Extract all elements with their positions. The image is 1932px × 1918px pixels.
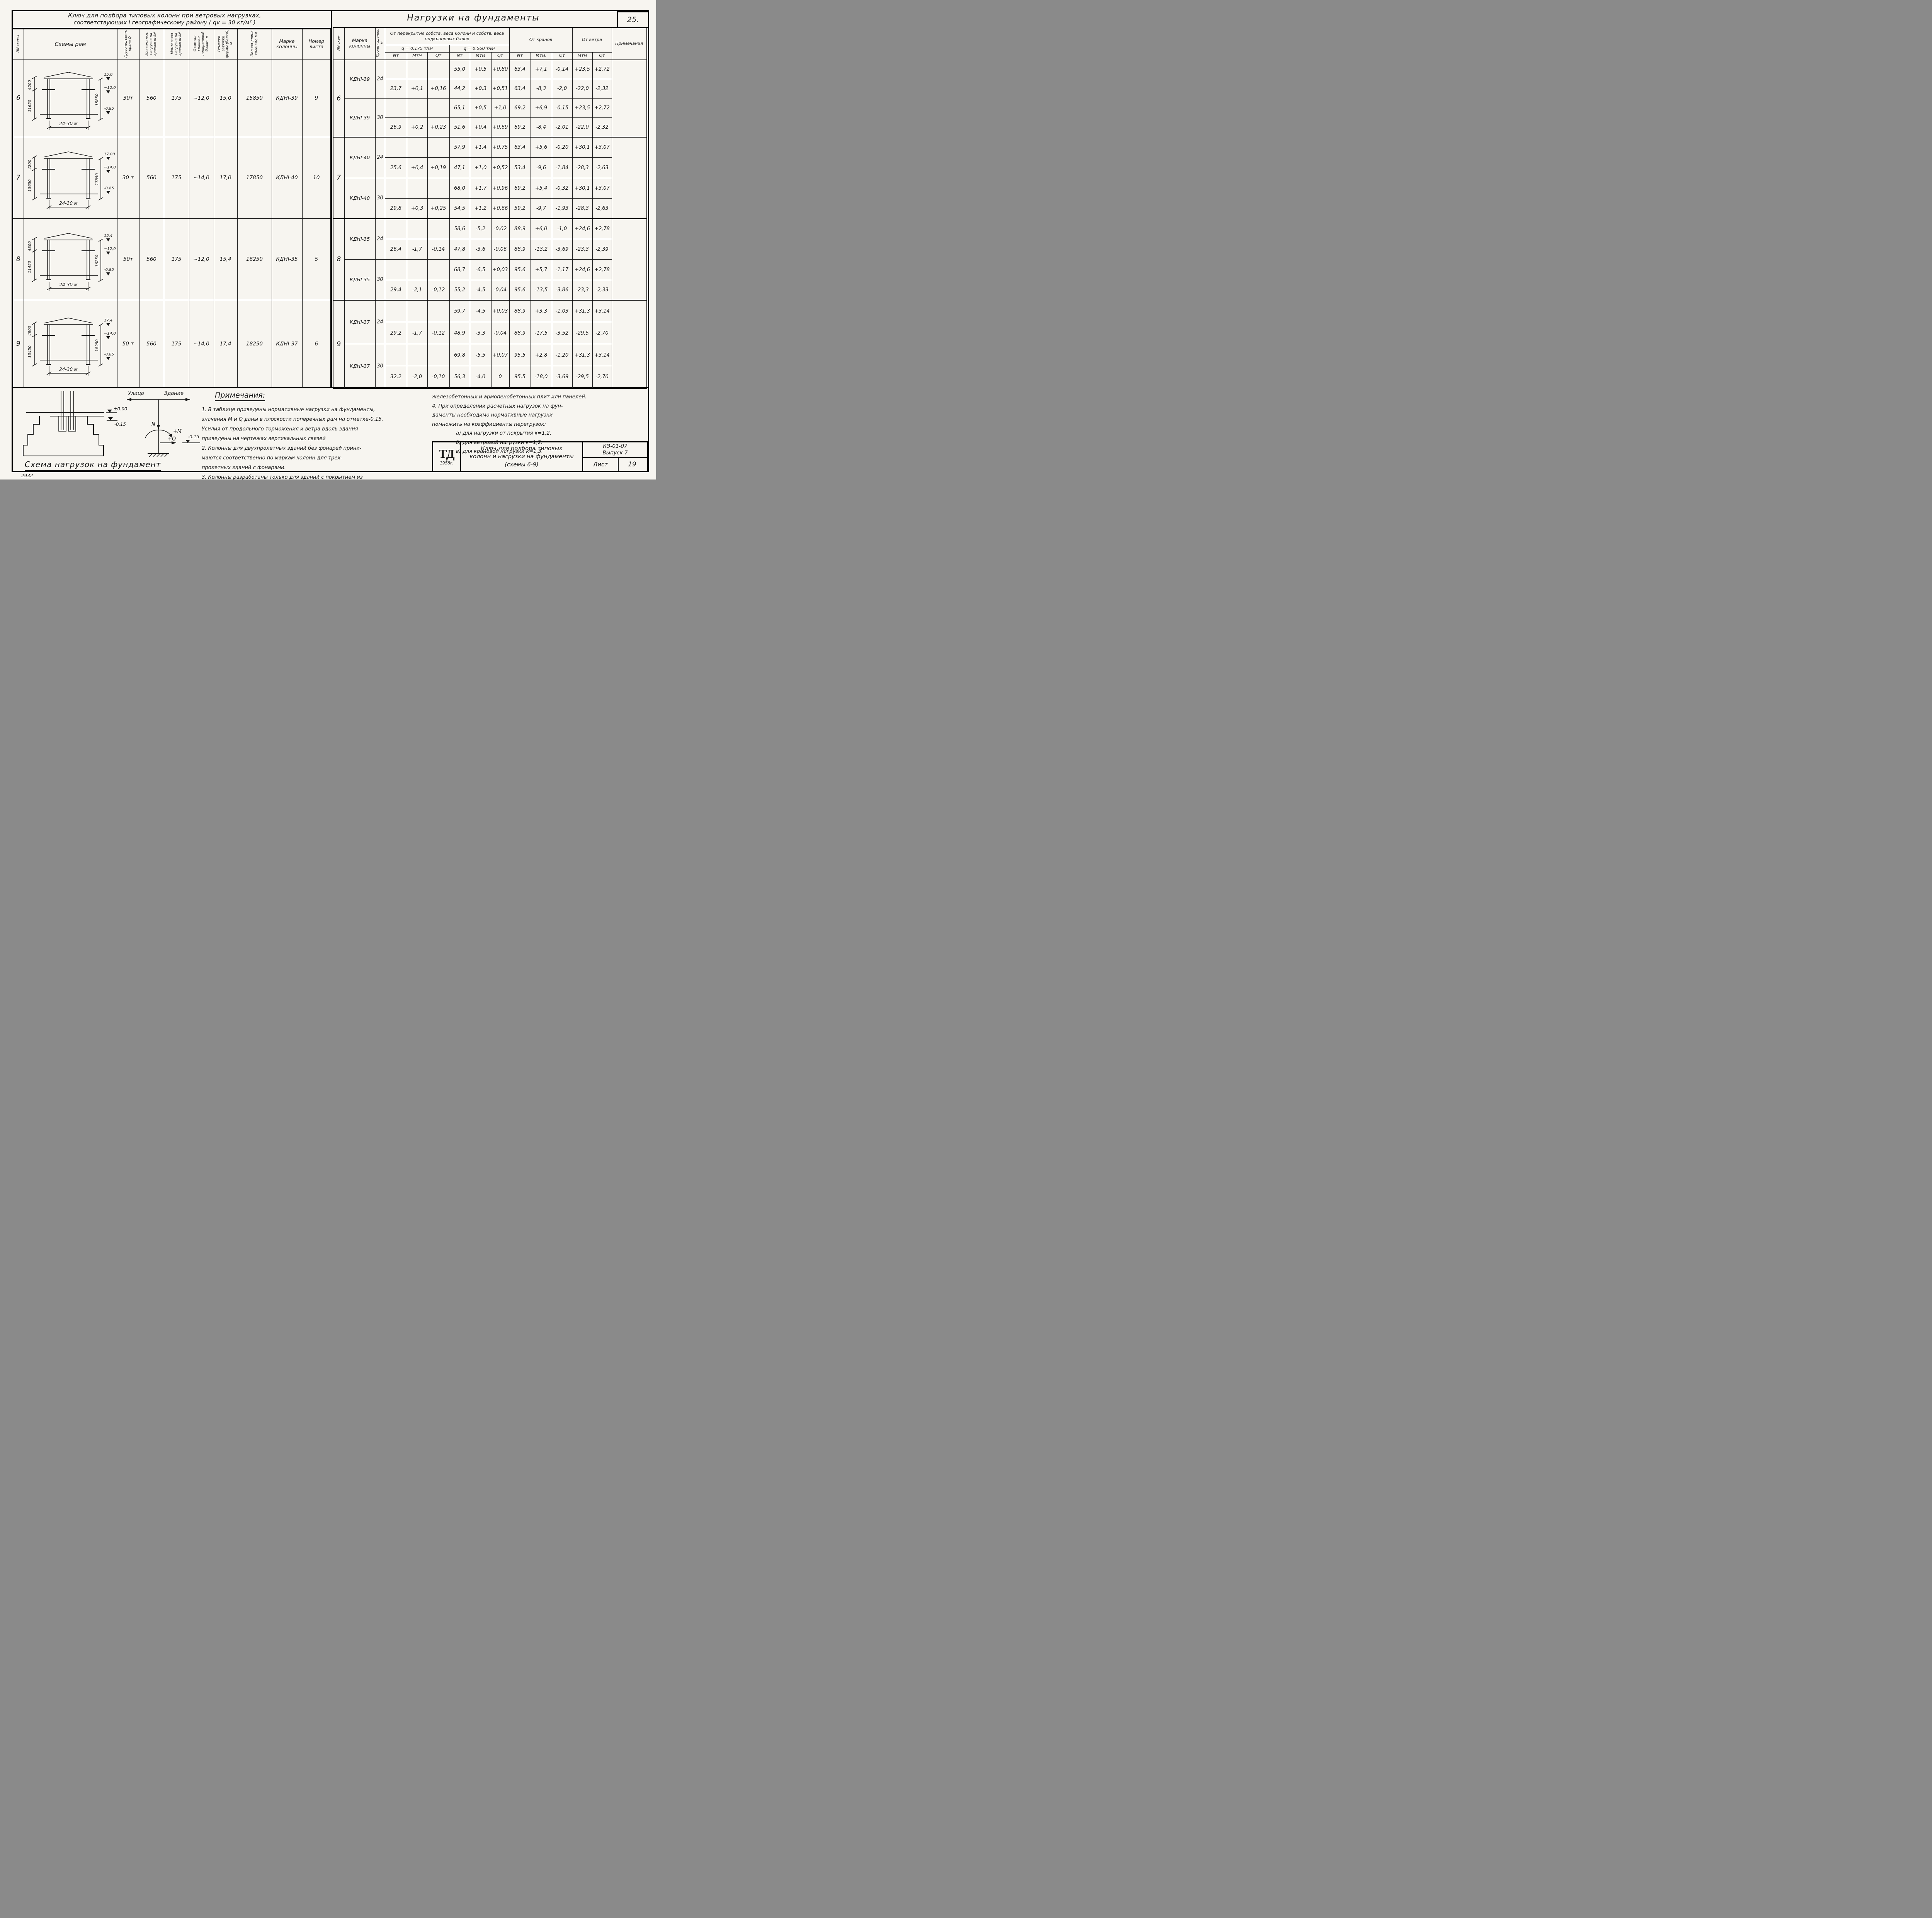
load-value: 63,4	[509, 60, 531, 79]
load-value: +1,0	[470, 158, 491, 178]
elev-mid: ~12,0	[104, 247, 116, 251]
page-number-box: 25.	[617, 11, 649, 28]
elev-zero-label: ±0.00	[114, 406, 127, 411]
load-value: -2,33	[592, 280, 612, 300]
left-table-value: КДНI-37	[272, 300, 302, 388]
note-line: даменты необходимо нормативные нагрузки	[432, 411, 633, 420]
left-table-row: 8 4800 11450 16250 15,4 ~12,0 -0.85 24-3…	[13, 218, 331, 300]
load-value: 63,4	[509, 79, 531, 99]
left-table-value: 5	[302, 218, 331, 300]
dim-right: 18250	[95, 339, 99, 352]
load-value: +7,1	[531, 60, 552, 79]
load-value: -1,93	[552, 199, 572, 219]
load-value: 88,9	[509, 322, 531, 344]
load-value: -2,39	[592, 239, 612, 260]
elev-floor-label: -0.15	[114, 422, 126, 427]
load-value	[385, 260, 407, 280]
header-notes: Примечания	[612, 27, 647, 60]
load-value	[407, 300, 427, 322]
left-table-row: 7 4200 13650 17850 17.00 ~14.0 -0.85 24-…	[13, 137, 331, 218]
elev-base: -0.85	[104, 107, 114, 111]
title-block-line1: Ключ для подбора типовых	[481, 445, 562, 453]
load-value: +0,07	[491, 344, 509, 366]
load-value: 56,3	[449, 366, 470, 388]
load-value	[407, 137, 427, 158]
load-value: +0,80	[491, 60, 509, 79]
load-value: 44,2	[449, 79, 470, 99]
frame-diagram-cell: 4800 11450 16250 15,4 ~12,0 -0.85 24-30 …	[24, 218, 117, 300]
left-table-value: 15850	[237, 60, 272, 137]
header-shemy-ram: Схемы рам	[24, 29, 117, 60]
column-mark: КДНI-39	[344, 99, 375, 137]
header-crane-beam-level: Отметка головки подкрановой балки, м	[189, 29, 214, 60]
column-mark: КДНI-40	[344, 178, 375, 219]
left-table-value: 10	[302, 137, 331, 218]
title-block-line2: колонн и нагрузки на фундаменты	[469, 453, 573, 461]
load-value	[427, 344, 449, 366]
load-value: +5,7	[531, 260, 552, 280]
left-table-value: КДНI-40	[272, 137, 302, 218]
load-value: 32,2	[385, 366, 407, 388]
subheader-n: Nт	[509, 52, 531, 60]
dim-right: 16250	[95, 255, 99, 267]
left-table-value: 17,0	[214, 137, 237, 218]
q-force-label: +Q	[168, 436, 176, 442]
dim-top-left: 4800	[28, 241, 32, 251]
load-value: -5,2	[470, 219, 491, 239]
load-value: -29,5	[572, 322, 592, 344]
load-value: -2,01	[552, 118, 572, 137]
building-span: 24	[375, 60, 385, 99]
load-value: 68,0	[449, 178, 470, 199]
subheader-n: Nт	[385, 52, 407, 60]
dim-bottom-left: 11650	[28, 100, 32, 112]
load-value: -23,3	[572, 239, 592, 260]
left-table-value: 175	[164, 300, 189, 388]
load-value: -0,06	[491, 239, 509, 260]
notes-empty-cell	[612, 219, 647, 300]
foundation-schema-title: Схема нагрузок на фундамент	[25, 460, 161, 471]
load-value: -3,69	[552, 366, 572, 388]
load-value: 95,6	[509, 260, 531, 280]
header-column-mark: Марка колонны	[272, 29, 302, 60]
load-value	[385, 99, 407, 118]
load-value	[385, 300, 407, 322]
load-value: -0,15	[552, 99, 572, 118]
column-mark: КДНI-37	[344, 344, 375, 388]
scheme-number: 9	[333, 300, 344, 388]
elev-mid: ~12.0	[104, 86, 116, 90]
load-value: -2,1	[407, 280, 427, 300]
left-table-value: КДНI-35	[272, 218, 302, 300]
load-value: -2,70	[592, 322, 612, 344]
column-mark: КДНI-39	[344, 60, 375, 99]
header-q175: q = 0.175 т/м²	[385, 45, 449, 52]
load-value: 95,6	[509, 280, 531, 300]
load-value: -1,84	[552, 158, 572, 178]
note-line: помножить на коэффициенты перегрузок:	[432, 420, 633, 429]
left-table-value: 560	[139, 137, 164, 218]
load-value: 54,5	[449, 199, 470, 219]
load-value: 88,9	[509, 239, 531, 260]
left-table-value: ~12,0	[189, 60, 214, 137]
foundation-schema-drawing: Улица Здание ±0.00 -0.15 N +М +Q -0.15	[15, 388, 209, 460]
load-value: 59,2	[509, 199, 531, 219]
left-table-row: 6 4200 11650 15850 15.0 ~12.0 -0.85 24-3…	[13, 60, 331, 137]
load-value: 55,0	[449, 60, 470, 79]
load-value: 23,7	[385, 79, 407, 99]
right-table-row: КДНI-353068,7-6,5+0,0395,6+5,7-1,17+24,6…	[333, 260, 647, 280]
subheader-m: Мтм	[470, 52, 491, 60]
load-value: +3,14	[592, 344, 612, 366]
column-mark: КДНI-37	[344, 300, 375, 344]
load-value: -2,63	[592, 158, 612, 178]
building-span: 30	[375, 178, 385, 219]
title-block-right-cell: КЭ-01-07 Выпуск 7 Лист 19	[583, 442, 647, 471]
frame-diagram: 4800 11450 16250 15,4 ~12,0 -0.85 24-30 …	[25, 221, 116, 296]
load-value: +3,07	[592, 137, 612, 158]
load-value: +0,52	[491, 158, 509, 178]
load-value	[407, 344, 427, 366]
left-table-value: КДНI-39	[272, 60, 302, 137]
load-value: +6,0	[531, 219, 552, 239]
load-value: 58,6	[449, 219, 470, 239]
notes-empty-cell	[612, 137, 647, 219]
building-span: 30	[375, 344, 385, 388]
load-value: +5,4	[531, 178, 552, 199]
building-span: 30	[375, 99, 385, 137]
document-code: КЭ-01-07	[603, 443, 627, 450]
load-value	[407, 219, 427, 239]
title-block-line3: (схемы 6-9)	[505, 461, 538, 469]
load-value: -0,14	[552, 60, 572, 79]
load-value: +0,3	[470, 79, 491, 99]
load-value: -13,5	[531, 280, 552, 300]
left-table-value: 30 т	[117, 137, 139, 218]
load-value: -8,4	[531, 118, 552, 137]
load-value	[407, 60, 427, 79]
header-nn-schem: NN схем	[333, 27, 344, 60]
load-value	[407, 99, 427, 118]
load-value: +2,72	[592, 99, 612, 118]
right-table-row: КДНI-393065,1+0,5+1,069,2+6,9-0,15+23,5+…	[333, 99, 647, 118]
load-value: 88,9	[509, 219, 531, 239]
load-value: 0	[491, 366, 509, 388]
header-nn-schemy: NN схемы	[13, 29, 24, 60]
load-value: -0,12	[427, 322, 449, 344]
left-table-value: ~14,0	[189, 300, 214, 388]
load-value: -1,7	[407, 322, 427, 344]
load-value: +24,6	[572, 219, 592, 239]
load-value: -28,3	[572, 199, 592, 219]
load-value: +3,14	[592, 300, 612, 322]
note-line: 2. Колонны для двухпролетных зданий без …	[202, 444, 424, 453]
load-value: -28,3	[572, 158, 592, 178]
load-value	[427, 137, 449, 158]
scheme-number: 7	[13, 137, 24, 218]
load-value: 53,4	[509, 158, 531, 178]
right-table-row: КДНI-403068,0+1,7+0,9669,2+5,4-0,32+30,1…	[333, 178, 647, 199]
header-erection-roof-load: Монтажная нагрузка на кровлю кг/м²	[164, 29, 189, 60]
note-line: маются соответственно по маркам колонн д…	[202, 453, 424, 463]
load-value: -4,5	[470, 300, 491, 322]
right-table-row: 7КДНI-402457,9+1,4+0,7563,4+5,6-0,20+30,…	[333, 137, 647, 158]
right-table-row: 8КДНI-352458,6-5,2-0,0288,9+6,0-1,0+24,6…	[333, 219, 647, 239]
load-value: +0,03	[491, 260, 509, 280]
load-value: -18,0	[531, 366, 552, 388]
load-value	[427, 260, 449, 280]
load-value: -0,14	[427, 239, 449, 260]
left-table-value: 560	[139, 300, 164, 388]
load-value: -2,70	[592, 366, 612, 388]
header-column-full-length: Полная длина колонны, мм	[237, 29, 272, 60]
document-issue: Выпуск 7	[602, 450, 628, 456]
note-line: 3. Колонны разработаны только для зданий…	[202, 473, 424, 479]
dim-right: 15850	[95, 94, 99, 106]
load-value: -17,5	[531, 322, 552, 344]
load-value: +1,7	[470, 178, 491, 199]
load-value: -8,3	[531, 79, 552, 99]
dim-bottom-left: 11450	[28, 261, 32, 273]
column-mark: КДНI-40	[344, 137, 375, 178]
load-value: -29,5	[572, 366, 592, 388]
left-table-value: ~12,0	[189, 218, 214, 300]
elev-base: -0.85	[104, 268, 114, 272]
load-value: -22,0	[572, 79, 592, 99]
load-value: 69,2	[509, 118, 531, 137]
n-force-label: N	[151, 422, 155, 427]
load-value	[427, 219, 449, 239]
header-crane-capacity: Грузоподъемн. крана Q	[117, 29, 139, 60]
scheme-number: 8	[333, 219, 344, 300]
left-table-row: 9 4800 13450 18250 17,4 ~14,0 -0.85 24-3…	[13, 300, 331, 388]
load-value: 29,4	[385, 280, 407, 300]
left-table-value: 18250	[237, 300, 272, 388]
load-value: +2,78	[592, 219, 612, 239]
load-value: 63,4	[509, 137, 531, 158]
load-value: +30,1	[572, 137, 592, 158]
title-block-sheet-cell: Лист 19	[583, 458, 647, 471]
load-value: +6,9	[531, 99, 552, 118]
elev-top: 15,4	[104, 234, 112, 238]
load-value: -3,52	[552, 322, 572, 344]
load-value: -4,0	[470, 366, 491, 388]
load-value: +3,07	[592, 178, 612, 199]
elev-mark-label: -0.15	[188, 434, 199, 439]
load-value	[385, 219, 407, 239]
load-value: -0,04	[491, 280, 509, 300]
load-value	[385, 344, 407, 366]
load-value: -6,5	[470, 260, 491, 280]
right-table-row: КДНI-373069,8-5,5+0,0795,5+2,8-1,20+31,3…	[333, 344, 647, 366]
load-value: -2,0	[552, 79, 572, 99]
load-value: +0,1	[407, 79, 427, 99]
load-value: 29,8	[385, 199, 407, 219]
load-value: +30,1	[572, 178, 592, 199]
subheader-m: Мтм	[407, 52, 427, 60]
building-label: Здание	[164, 391, 184, 396]
load-value: +1,0	[491, 99, 509, 118]
note-line: значения М и Q даны в плоскости поперечн…	[202, 415, 424, 424]
load-value: -0,10	[427, 366, 449, 388]
load-value	[427, 99, 449, 118]
frame-diagram: 4200 13650 17850 17.00 ~14.0 -0.85 24-30…	[25, 140, 116, 214]
frame-diagram-cell: 4800 13450 18250 17,4 ~14,0 -0.85 24-30 …	[24, 300, 117, 388]
load-value: +0,4	[470, 118, 491, 137]
subheader-q: Qт	[592, 52, 612, 60]
td-logo: ТД	[439, 448, 454, 459]
dim-top-left: 4200	[28, 80, 32, 90]
column-key-table: NN схемы Схемы рам Грузоподъемн. крана Q…	[12, 29, 331, 388]
archive-stamp: 2932	[21, 473, 33, 478]
load-value: -0,20	[552, 137, 572, 158]
load-value: +1,4	[470, 137, 491, 158]
header-mark: Марка колонны	[344, 27, 375, 60]
load-value: +24,6	[572, 260, 592, 280]
title-block: ТД 1958г. Ключ для подбора типовых колон…	[432, 441, 648, 472]
left-table-value: ~14,0	[189, 137, 214, 218]
load-value: 57,9	[449, 137, 470, 158]
column-mark: КДНI-35	[344, 219, 375, 260]
elev-base: -0.85	[104, 352, 114, 357]
load-value	[407, 178, 427, 199]
load-value: -3,6	[470, 239, 491, 260]
subheader-m: Мтм	[572, 52, 592, 60]
load-value	[427, 300, 449, 322]
subheader-m: Мтм.	[531, 52, 552, 60]
load-value: +0,5	[470, 60, 491, 79]
left-table-value: 15,0	[214, 60, 237, 137]
sheet-label: Лист	[583, 458, 619, 471]
load-value: +23,5	[572, 60, 592, 79]
left-title-line2: соответствующих I географическому району…	[22, 19, 307, 27]
dim-top-left: 4200	[28, 160, 32, 169]
note-line: железобетонных и армопенобетонных плит и…	[432, 393, 633, 402]
span-label: 24-30 м	[59, 201, 78, 206]
column-mark: КДНI-35	[344, 260, 375, 300]
load-value: +1,2	[470, 199, 491, 219]
note-line: а) для нагрузки от покрытия к=1,2.	[432, 429, 633, 438]
load-value: -1,17	[552, 260, 572, 280]
left-table-value: 9	[302, 60, 331, 137]
load-value: +0,16	[427, 79, 449, 99]
scheme-number: 9	[13, 300, 24, 388]
sheet-number: 19	[619, 458, 646, 471]
load-value: -3,86	[552, 280, 572, 300]
load-value: +0,5	[470, 99, 491, 118]
building-span: 24	[375, 219, 385, 260]
load-value: 59,7	[449, 300, 470, 322]
elev-mid: ~14,0	[104, 332, 116, 336]
load-value	[407, 260, 427, 280]
note-line: Усилия от продольного торможения и ветра…	[202, 424, 424, 434]
load-value: -2,32	[592, 118, 612, 137]
load-value: 65,1	[449, 99, 470, 118]
frame-diagram-cell: 4200 13650 17850 17.00 ~14.0 -0.85 24-30…	[24, 137, 117, 218]
scheme-number: 6	[333, 60, 344, 137]
load-value: +23,5	[572, 99, 592, 118]
building-span: 24	[375, 137, 385, 178]
load-value: -9,7	[531, 199, 552, 219]
header-cranes-group: От кранов	[509, 27, 572, 52]
right-table-row: 6КДНI-392455,0+0,5+0,8063,4+7,1-0,14+23,…	[333, 60, 647, 79]
load-value	[427, 60, 449, 79]
load-value: -4,5	[470, 280, 491, 300]
load-value: +2,8	[531, 344, 552, 366]
header-building-span: Пролет здания, м	[375, 27, 385, 60]
title-block-year: 1958г.	[440, 461, 454, 466]
load-value: +5,6	[531, 137, 552, 158]
note-line: 4. При определении расчетных нагрузок на…	[432, 402, 633, 411]
load-value: +0,75	[491, 137, 509, 158]
load-value: +0,25	[427, 199, 449, 219]
load-value: -1,7	[407, 239, 427, 260]
load-value: -3,3	[470, 322, 491, 344]
span-label: 24-30 м	[59, 367, 78, 372]
scheme-number: 6	[13, 60, 24, 137]
load-value: +31,3	[572, 344, 592, 366]
load-value: +2,78	[592, 260, 612, 280]
load-value: 69,2	[509, 178, 531, 199]
notes-column-1: 1. В таблице приведены нормативные нагру…	[202, 405, 424, 479]
load-value: -1,03	[552, 300, 572, 322]
load-value: 95,5	[509, 344, 531, 366]
load-value: -5,5	[470, 344, 491, 366]
m-moment-label: +М	[173, 428, 182, 434]
header-q560: q = 0,560 т/м²	[449, 45, 509, 52]
load-value: +0,3	[407, 199, 427, 219]
subheader-n: Nт	[449, 52, 470, 60]
notes-empty-cell	[612, 60, 647, 137]
foundation-schema: Улица Здание ±0.00 -0.15 N +М +Q -0.15	[15, 388, 209, 461]
left-table-value: 15,4	[214, 218, 237, 300]
load-value: -3,69	[552, 239, 572, 260]
scheme-number: 7	[333, 137, 344, 219]
header-sheet-no: Номер листа	[302, 29, 331, 60]
left-table-value: 17850	[237, 137, 272, 218]
load-value: -0,32	[552, 178, 572, 199]
dim-bottom-left: 13450	[28, 345, 32, 358]
right-table-title: Нагрузки на фундаменты	[383, 13, 564, 23]
load-value	[427, 178, 449, 199]
load-value: 69,2	[509, 99, 531, 118]
building-span: 30	[375, 260, 385, 300]
street-label: Улица	[128, 391, 144, 396]
left-table-value: 17,4	[214, 300, 237, 388]
note-line: приведены на чертежах вертикальных связе…	[202, 434, 424, 444]
load-value: -0,02	[491, 219, 509, 239]
load-value: -13,2	[531, 239, 552, 260]
load-value: 95,5	[509, 366, 531, 388]
notes-empty-cell	[612, 300, 647, 388]
left-table-value: 175	[164, 137, 189, 218]
building-span: 24	[375, 300, 385, 344]
load-value: -2,0	[407, 366, 427, 388]
left-table-value: 175	[164, 60, 189, 137]
left-table-value: 30т	[117, 60, 139, 137]
load-value: -0,12	[427, 280, 449, 300]
load-value	[385, 137, 407, 158]
title-block-logo-cell: ТД 1958г.	[433, 442, 461, 471]
load-value: 69,8	[449, 344, 470, 366]
title-block-code-cell: КЭ-01-07 Выпуск 7	[583, 442, 647, 458]
load-value: 26,4	[385, 239, 407, 260]
load-value: 47,1	[449, 158, 470, 178]
load-value: 48,9	[449, 322, 470, 344]
load-value: +0,66	[491, 199, 509, 219]
span-label: 24-30 м	[59, 282, 78, 287]
load-value: -2,32	[592, 79, 612, 99]
